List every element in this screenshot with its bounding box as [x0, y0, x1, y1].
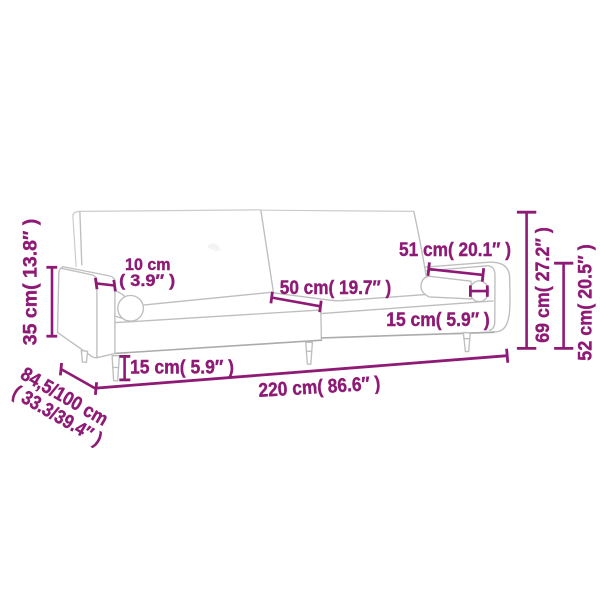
svg-text:52 cm( 20.5″ ): 52 cm( 20.5″ ) [575, 244, 597, 361]
svg-text:69 cm( 27.2″ ): 69 cm( 27.2″ ) [532, 227, 554, 343]
svg-text:15 cm( 5.9″ ): 15 cm( 5.9″ ) [386, 310, 490, 331]
svg-text:50 cm( 19.7″ ): 50 cm( 19.7″ ) [280, 277, 392, 299]
svg-text:35 cm( 13.8″ ): 35 cm( 13.8″ ) [20, 219, 42, 346]
svg-text:51 cm( 20.1″ ): 51 cm( 20.1″ ) [399, 239, 511, 261]
svg-text:15 cm( 5.9″ ): 15 cm( 5.9″ ) [130, 358, 234, 379]
svg-text:( 3.9″ ): ( 3.9″ ) [119, 271, 175, 290]
